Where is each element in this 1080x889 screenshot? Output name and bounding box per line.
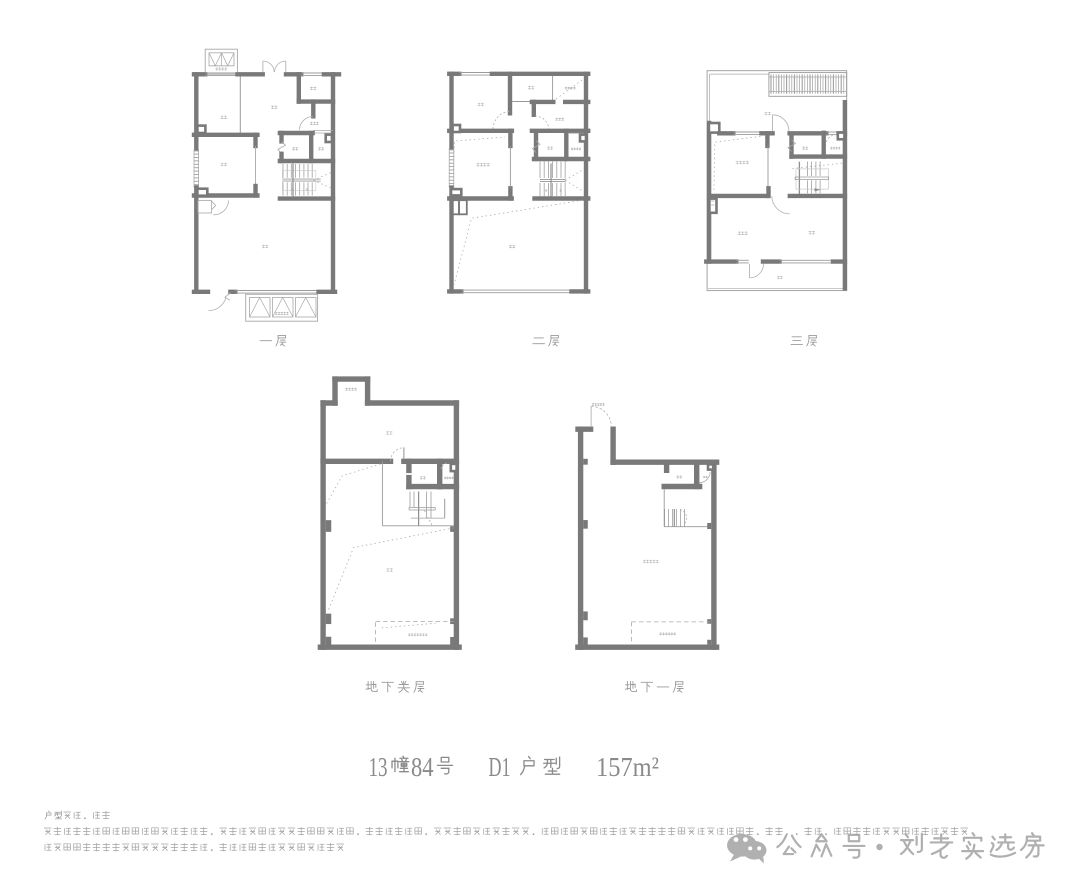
svg-text:157m²: 157m² bbox=[596, 751, 659, 782]
svg-text:D1: D1 bbox=[489, 751, 511, 782]
svg-text:13: 13 bbox=[369, 751, 388, 782]
svg-text:84: 84 bbox=[411, 751, 434, 782]
